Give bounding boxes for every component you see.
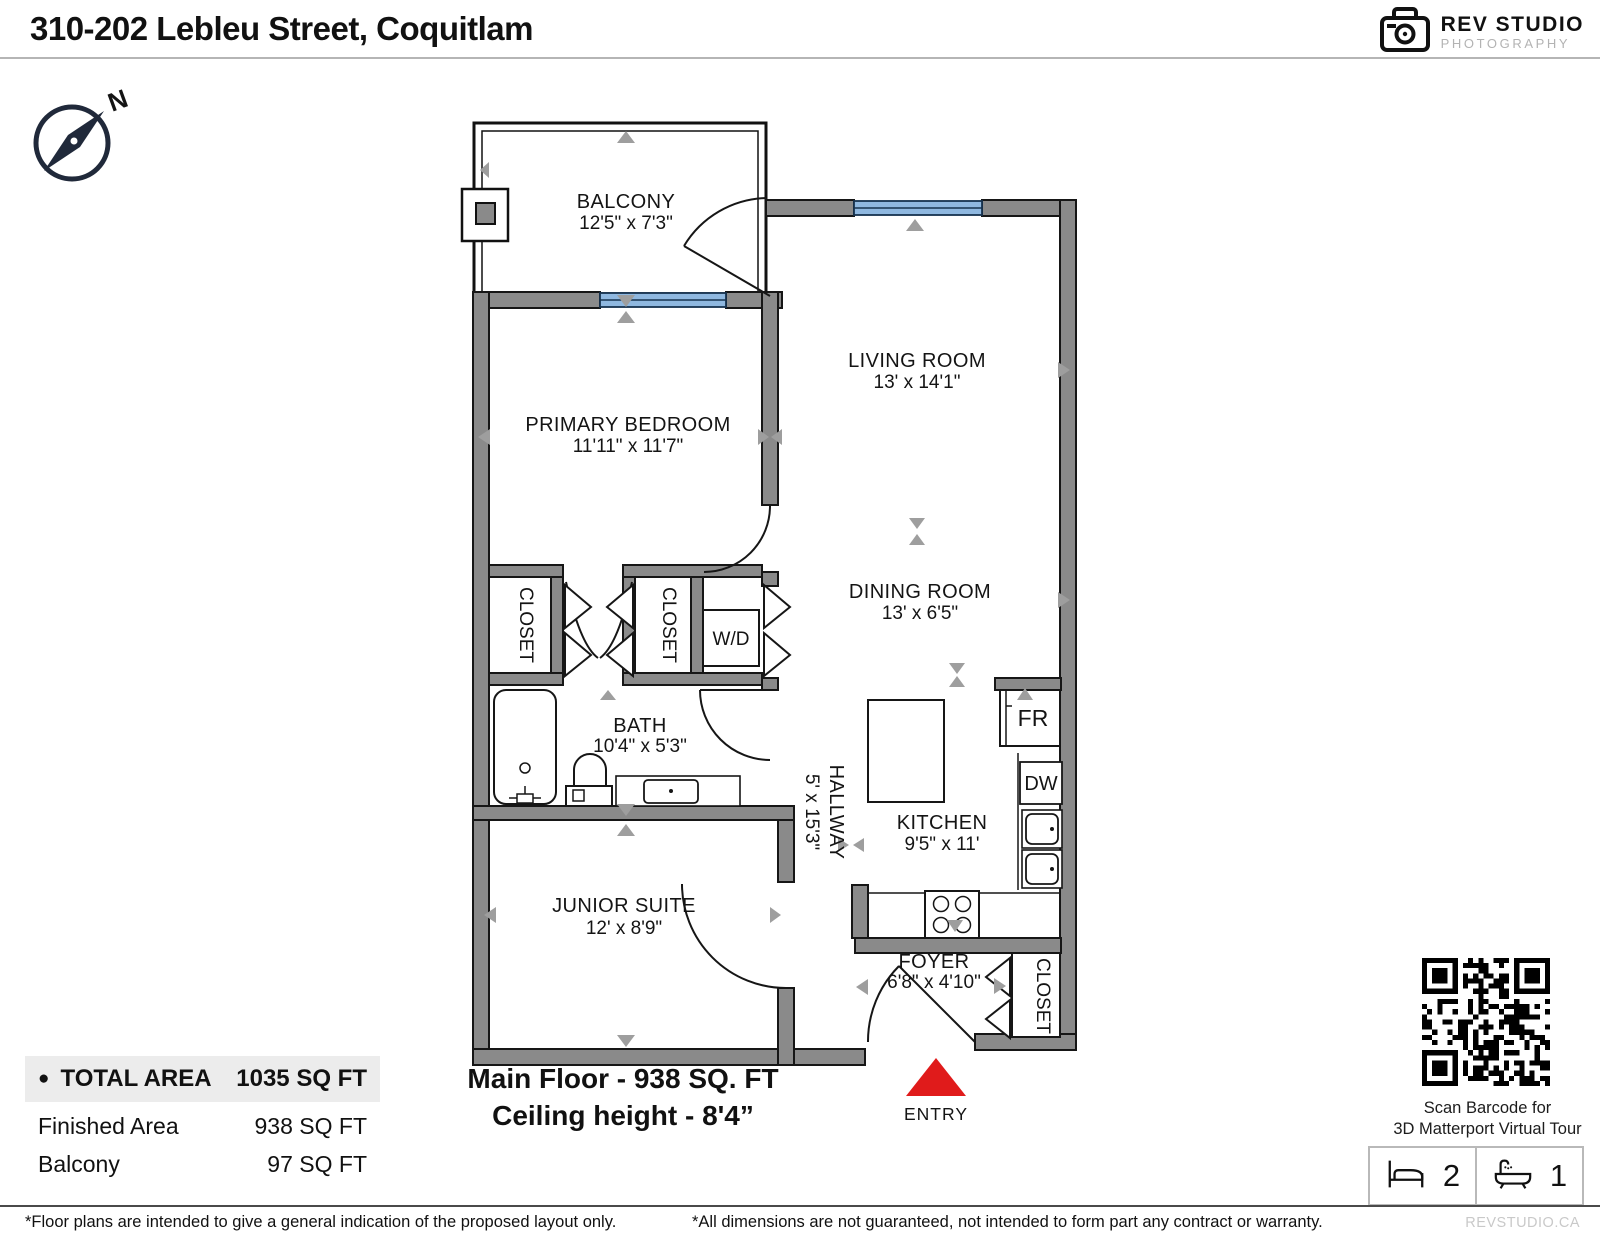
total-area-row: ● TOTAL AREA 1035 SQ FT: [25, 1056, 380, 1102]
room-dims-balcony: 12'5" x 7'3": [579, 213, 673, 234]
closet-label-bedroom-right: CLOSET: [658, 587, 679, 663]
closet-label-bedroom-left: CLOSET: [515, 587, 536, 663]
room-label-foyer: FOYER: [899, 951, 970, 973]
finished-area-row: Finished Area 938 SQ FT: [25, 1102, 380, 1140]
room-dims-living: 13' x 14'1": [874, 372, 961, 393]
finished-area-value: 938 SQ FT: [255, 1113, 367, 1140]
floorplan-drawing: N: [0, 0, 1600, 1239]
bathtub-icon: [1492, 1156, 1534, 1197]
bath-vanity: [616, 776, 740, 806]
ceiling-height: Ceiling height - 8'4”: [433, 1097, 813, 1134]
area-summary: ● TOTAL AREA 1035 SQ FT Finished Area 93…: [25, 1056, 380, 1178]
qr-caption-line1: Scan Barcode for: [1360, 1098, 1600, 1119]
room-label-bath: BATH: [613, 715, 666, 737]
room-dims-kitchen: 9'5" x 11': [905, 834, 980, 855]
stove: [868, 891, 1060, 938]
room-label-hallway: HALLWAY: [825, 765, 847, 860]
total-area-value: 1035 SQ FT: [236, 1065, 367, 1093]
footer-divider: [0, 1205, 1600, 1207]
room-label-kitchen: KITCHEN: [897, 812, 988, 834]
total-area-label: TOTAL AREA: [60, 1065, 211, 1093]
floorplan-page: 310-202 Lebleu Street, Coquitlam REV STU…: [0, 0, 1600, 1239]
room-label-junior-suite: JUNIOR SUITE: [552, 895, 696, 917]
entry-marker: ENTRY: [904, 1058, 968, 1124]
balcony-area-row: Balcony 97 SQ FT: [25, 1140, 380, 1178]
footer-disclaimer-left: *Floor plans are intended to give a gene…: [25, 1213, 616, 1232]
entry-label: ENTRY: [904, 1104, 968, 1124]
qr-caption-line2: 3D Matterport Virtual Tour: [1360, 1119, 1600, 1140]
fridge-label: FR: [1018, 705, 1049, 731]
compass-north-label: N: [104, 83, 132, 118]
closet-label-entry: CLOSET: [1032, 958, 1053, 1034]
bed-icon: [1385, 1157, 1427, 1196]
room-dims-junior-suite: 12' x 8'9": [586, 918, 662, 939]
bed-count-cell: 2: [1370, 1148, 1477, 1204]
washer-dryer-label: W/D: [713, 629, 750, 650]
toilet: [566, 754, 612, 806]
room-label-dining: DINING ROOM: [849, 581, 991, 603]
walls: [473, 200, 1076, 1065]
qr-code: [1422, 958, 1550, 1086]
floor-info: Main Floor - 938 SQ. FT Ceiling height -…: [433, 1060, 813, 1134]
balcony-area-value: 97 SQ FT: [267, 1151, 367, 1178]
room-dims-hallway: 5' x 15'3": [801, 774, 822, 850]
bath-count-cell: 1: [1477, 1148, 1582, 1204]
bed-count: 2: [1443, 1158, 1460, 1194]
dishwasher-label: DW: [1024, 773, 1057, 795]
compass-icon: N: [36, 83, 132, 179]
entry-arrow-icon: [906, 1058, 966, 1096]
room-label-living: LIVING ROOM: [848, 350, 986, 372]
room-dims-dining: 13' x 6'5": [882, 603, 958, 624]
qr-caption: Scan Barcode for 3D Matterport Virtual T…: [1360, 1098, 1600, 1140]
room-dims-bath: 10'4" x 5'3": [593, 736, 687, 757]
room-dims-primary-bedroom: 11'11" x 11'7": [573, 436, 684, 457]
bed-bath-box: 2 1: [1368, 1146, 1584, 1206]
footer-website: REVSTUDIO.CA: [1465, 1215, 1580, 1231]
room-label-balcony: BALCONY: [577, 191, 675, 213]
bullet-icon: ●: [38, 1068, 49, 1090]
room-dims-foyer: 6'8" x 4'10": [887, 972, 981, 993]
finished-area-label: Finished Area: [38, 1113, 179, 1140]
bath-count: 1: [1550, 1158, 1567, 1194]
floor-name-area: Main Floor - 938 SQ. FT: [433, 1060, 813, 1097]
kitchen-island: [868, 700, 944, 802]
room-label-primary-bedroom: PRIMARY BEDROOM: [525, 414, 730, 436]
balcony-area-label: Balcony: [38, 1151, 120, 1178]
footer-disclaimer-center: *All dimensions are not guaranteed, not …: [692, 1213, 1323, 1232]
